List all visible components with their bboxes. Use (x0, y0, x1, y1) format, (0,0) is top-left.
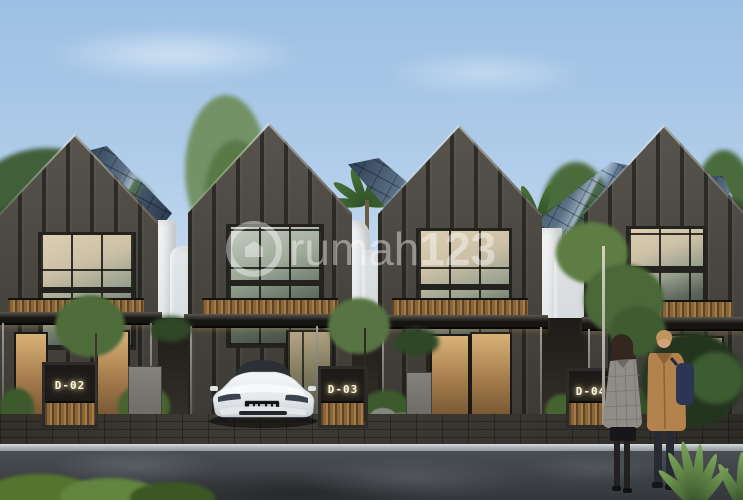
woman-coat (603, 359, 642, 428)
tree-trunk (364, 328, 366, 422)
man-coat-opening (664, 365, 665, 429)
tree-trunk (95, 333, 97, 421)
tree-foliage (328, 298, 390, 354)
woman-skirt (610, 427, 636, 441)
watermark-text: rumah123 (289, 226, 496, 272)
house-3-entry-door (470, 332, 512, 424)
architectural-render-scene: D-02 D-03 D-04 (0, 0, 743, 500)
backpack (676, 363, 694, 405)
white-electric-sedan (205, 350, 321, 430)
floor-beam (416, 284, 512, 290)
home-pin-icon (226, 221, 282, 277)
front-tree (55, 295, 135, 425)
overhanging-foliage (150, 316, 192, 342)
woman-leg (614, 441, 620, 487)
car-side-mirror (210, 386, 218, 391)
watermark-brand-bold: 123 (419, 223, 496, 275)
spiky-plant (706, 452, 743, 500)
car-side-mirror (308, 386, 316, 391)
floor-beam (38, 287, 136, 293)
car-lower-intake (239, 411, 287, 415)
watermark: rumah123 (226, 221, 496, 277)
floor-beam (226, 280, 324, 286)
woman-shoe (612, 486, 621, 491)
carport-post (190, 326, 192, 424)
tree-foliage (55, 295, 125, 357)
front-tree (328, 298, 408, 424)
utility-box (406, 372, 432, 420)
carport-post (540, 327, 542, 424)
cloud (380, 52, 590, 94)
overhanging-foliage (393, 328, 439, 356)
watermark-brand-light: rumah (289, 223, 419, 275)
cloud (40, 28, 310, 80)
